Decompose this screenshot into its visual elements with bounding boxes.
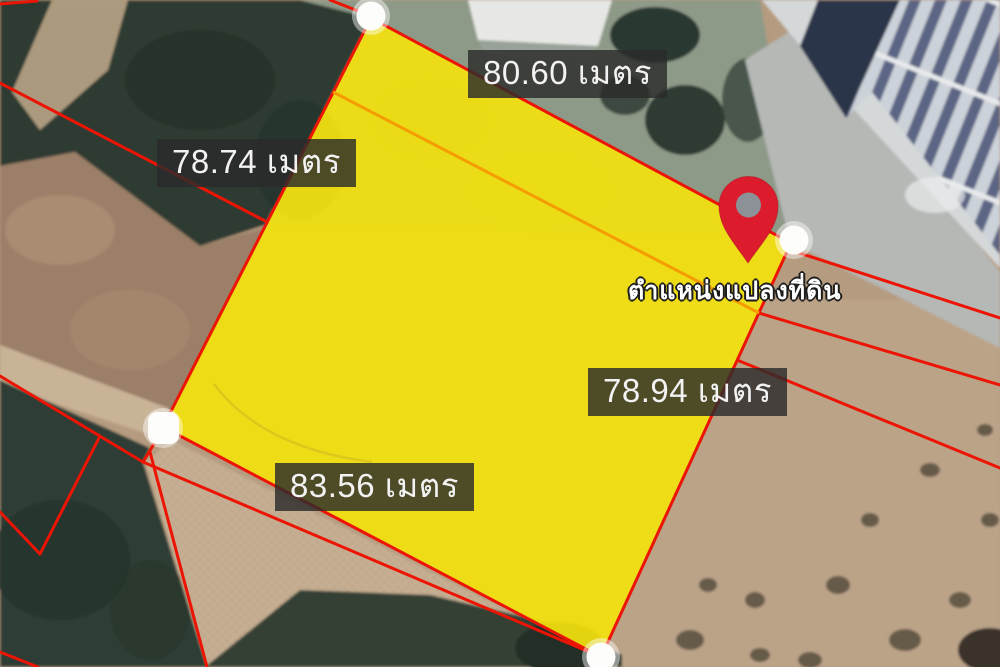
side-length-label-bottom: 83.56 เมตร xyxy=(275,463,474,511)
side-length-label-left: 78.74 เมตร xyxy=(157,139,356,187)
map-view[interactable]: 80.60 เมตร 78.74 เมตร 78.94 เมตร 83.56 เ… xyxy=(0,0,1000,667)
pin-label: ตำแหน่งแปลงที่ดิน xyxy=(628,271,841,311)
vertex-marker-right[interactable] xyxy=(775,221,813,259)
satellite-imagery xyxy=(0,0,1000,667)
side-length-label-right: 78.94 เมตร xyxy=(588,368,787,416)
vertex-marker-left[interactable] xyxy=(143,408,183,448)
side-length-label-top: 80.60 เมตร xyxy=(468,50,667,98)
